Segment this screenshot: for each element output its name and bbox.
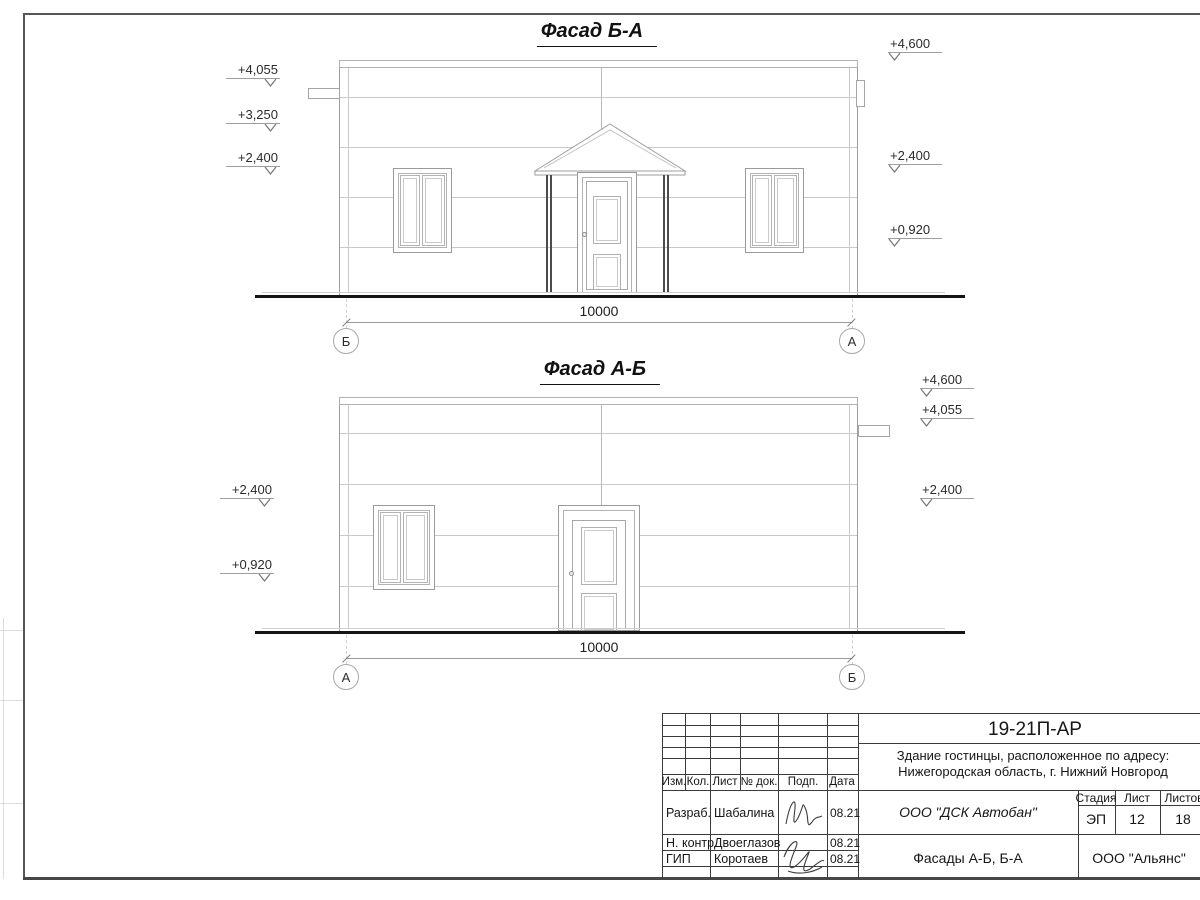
fascia-band xyxy=(339,397,858,405)
entrance-door xyxy=(558,505,640,631)
axis-mark: Б xyxy=(333,328,359,354)
doc-code: 19-21П-АР xyxy=(988,719,1082,741)
company: ООО "Альянс" xyxy=(1092,850,1186,866)
person-name: Двоеглазов xyxy=(714,836,780,850)
level-mark: +2,400 xyxy=(920,482,974,499)
level-mark: +2,400 xyxy=(220,482,274,499)
level-mark: +0,920 xyxy=(888,222,942,239)
facade-ba-title: Фасад Б-А xyxy=(537,20,657,47)
margin-stamp-line xyxy=(3,618,4,879)
ground-line xyxy=(255,631,965,634)
door-handle xyxy=(569,571,574,576)
person-name: Коротаев xyxy=(714,852,768,866)
window xyxy=(373,505,435,590)
margin-stamp-line xyxy=(0,803,23,804)
role: ГИП xyxy=(666,852,691,866)
ground-line xyxy=(255,295,965,298)
sheets-total: 18 xyxy=(1175,811,1191,827)
signature xyxy=(782,794,824,834)
sheet-label: Лист xyxy=(1124,791,1150,805)
level-mark: +2,400 xyxy=(888,148,942,165)
col-header: Лист xyxy=(713,776,738,788)
dimension-line xyxy=(346,658,852,659)
object-name-line2: Нижегородская область, г. Нижний Новгоро… xyxy=(898,764,1168,779)
window xyxy=(745,168,804,253)
level-mark: +4,600 xyxy=(920,372,974,389)
dimension-value: 10000 xyxy=(580,303,619,319)
dimension-line xyxy=(346,322,852,323)
contractor: ООО "ДСК Автобан" xyxy=(899,804,1037,820)
level-mark: +4,055 xyxy=(226,62,280,79)
axis-mark: Б xyxy=(839,664,865,690)
frame-top xyxy=(23,13,1200,15)
frame-bottom xyxy=(23,877,1200,880)
role: Н. контр. xyxy=(666,836,718,850)
person-name: Шабалина xyxy=(714,806,774,820)
level-mark: +3,250 xyxy=(226,107,280,124)
dimension-value: 10000 xyxy=(580,639,619,655)
date: 08.21 xyxy=(830,836,860,850)
vent-pipe xyxy=(858,425,890,437)
col-header: Дата xyxy=(829,776,854,788)
level-mark: +0,920 xyxy=(220,557,274,574)
stage-value: ЭП xyxy=(1086,811,1106,827)
date: 08.21 xyxy=(830,852,860,866)
col-header: № док. xyxy=(741,776,778,788)
wall-seam xyxy=(601,405,602,505)
frame-left xyxy=(23,13,25,879)
col-header: Изм. xyxy=(662,776,687,788)
facade-ab-title: Фасад А-Б xyxy=(540,358,660,385)
sheets-label: Листов xyxy=(1165,791,1200,805)
col-header: Кол. xyxy=(687,776,710,788)
vent-pipe xyxy=(856,80,865,107)
porch-column xyxy=(663,175,669,293)
axis-mark: А xyxy=(839,328,865,354)
role: Разраб. xyxy=(666,806,711,820)
window xyxy=(393,168,452,253)
level-mark: +4,055 xyxy=(920,402,974,419)
axis-mark: А xyxy=(333,664,359,690)
porch-column xyxy=(546,175,552,293)
drawing-title: Фасады А-Б, Б-А xyxy=(913,850,1023,866)
fascia-band xyxy=(339,60,858,68)
margin-stamp-line xyxy=(0,630,23,631)
date: 08.21 xyxy=(830,806,860,820)
porch-canopy xyxy=(530,120,690,178)
door-handle xyxy=(582,232,587,237)
level-mark: +2,400 xyxy=(226,150,280,167)
level-mark: +4,600 xyxy=(888,36,942,53)
drawing-sheet: Фасад Б-А 10000 Б А xyxy=(0,0,1200,900)
object-name-line1: Здание гостинцы, расположенное по адресу… xyxy=(897,748,1169,763)
margin-stamp-line xyxy=(0,700,23,701)
entrance-door xyxy=(577,172,637,293)
sheet-number: 12 xyxy=(1129,811,1145,827)
col-header: Подп. xyxy=(788,776,819,788)
vent-pipe xyxy=(308,88,340,99)
signature xyxy=(778,833,826,877)
stage-label: Стадия xyxy=(1076,791,1117,805)
